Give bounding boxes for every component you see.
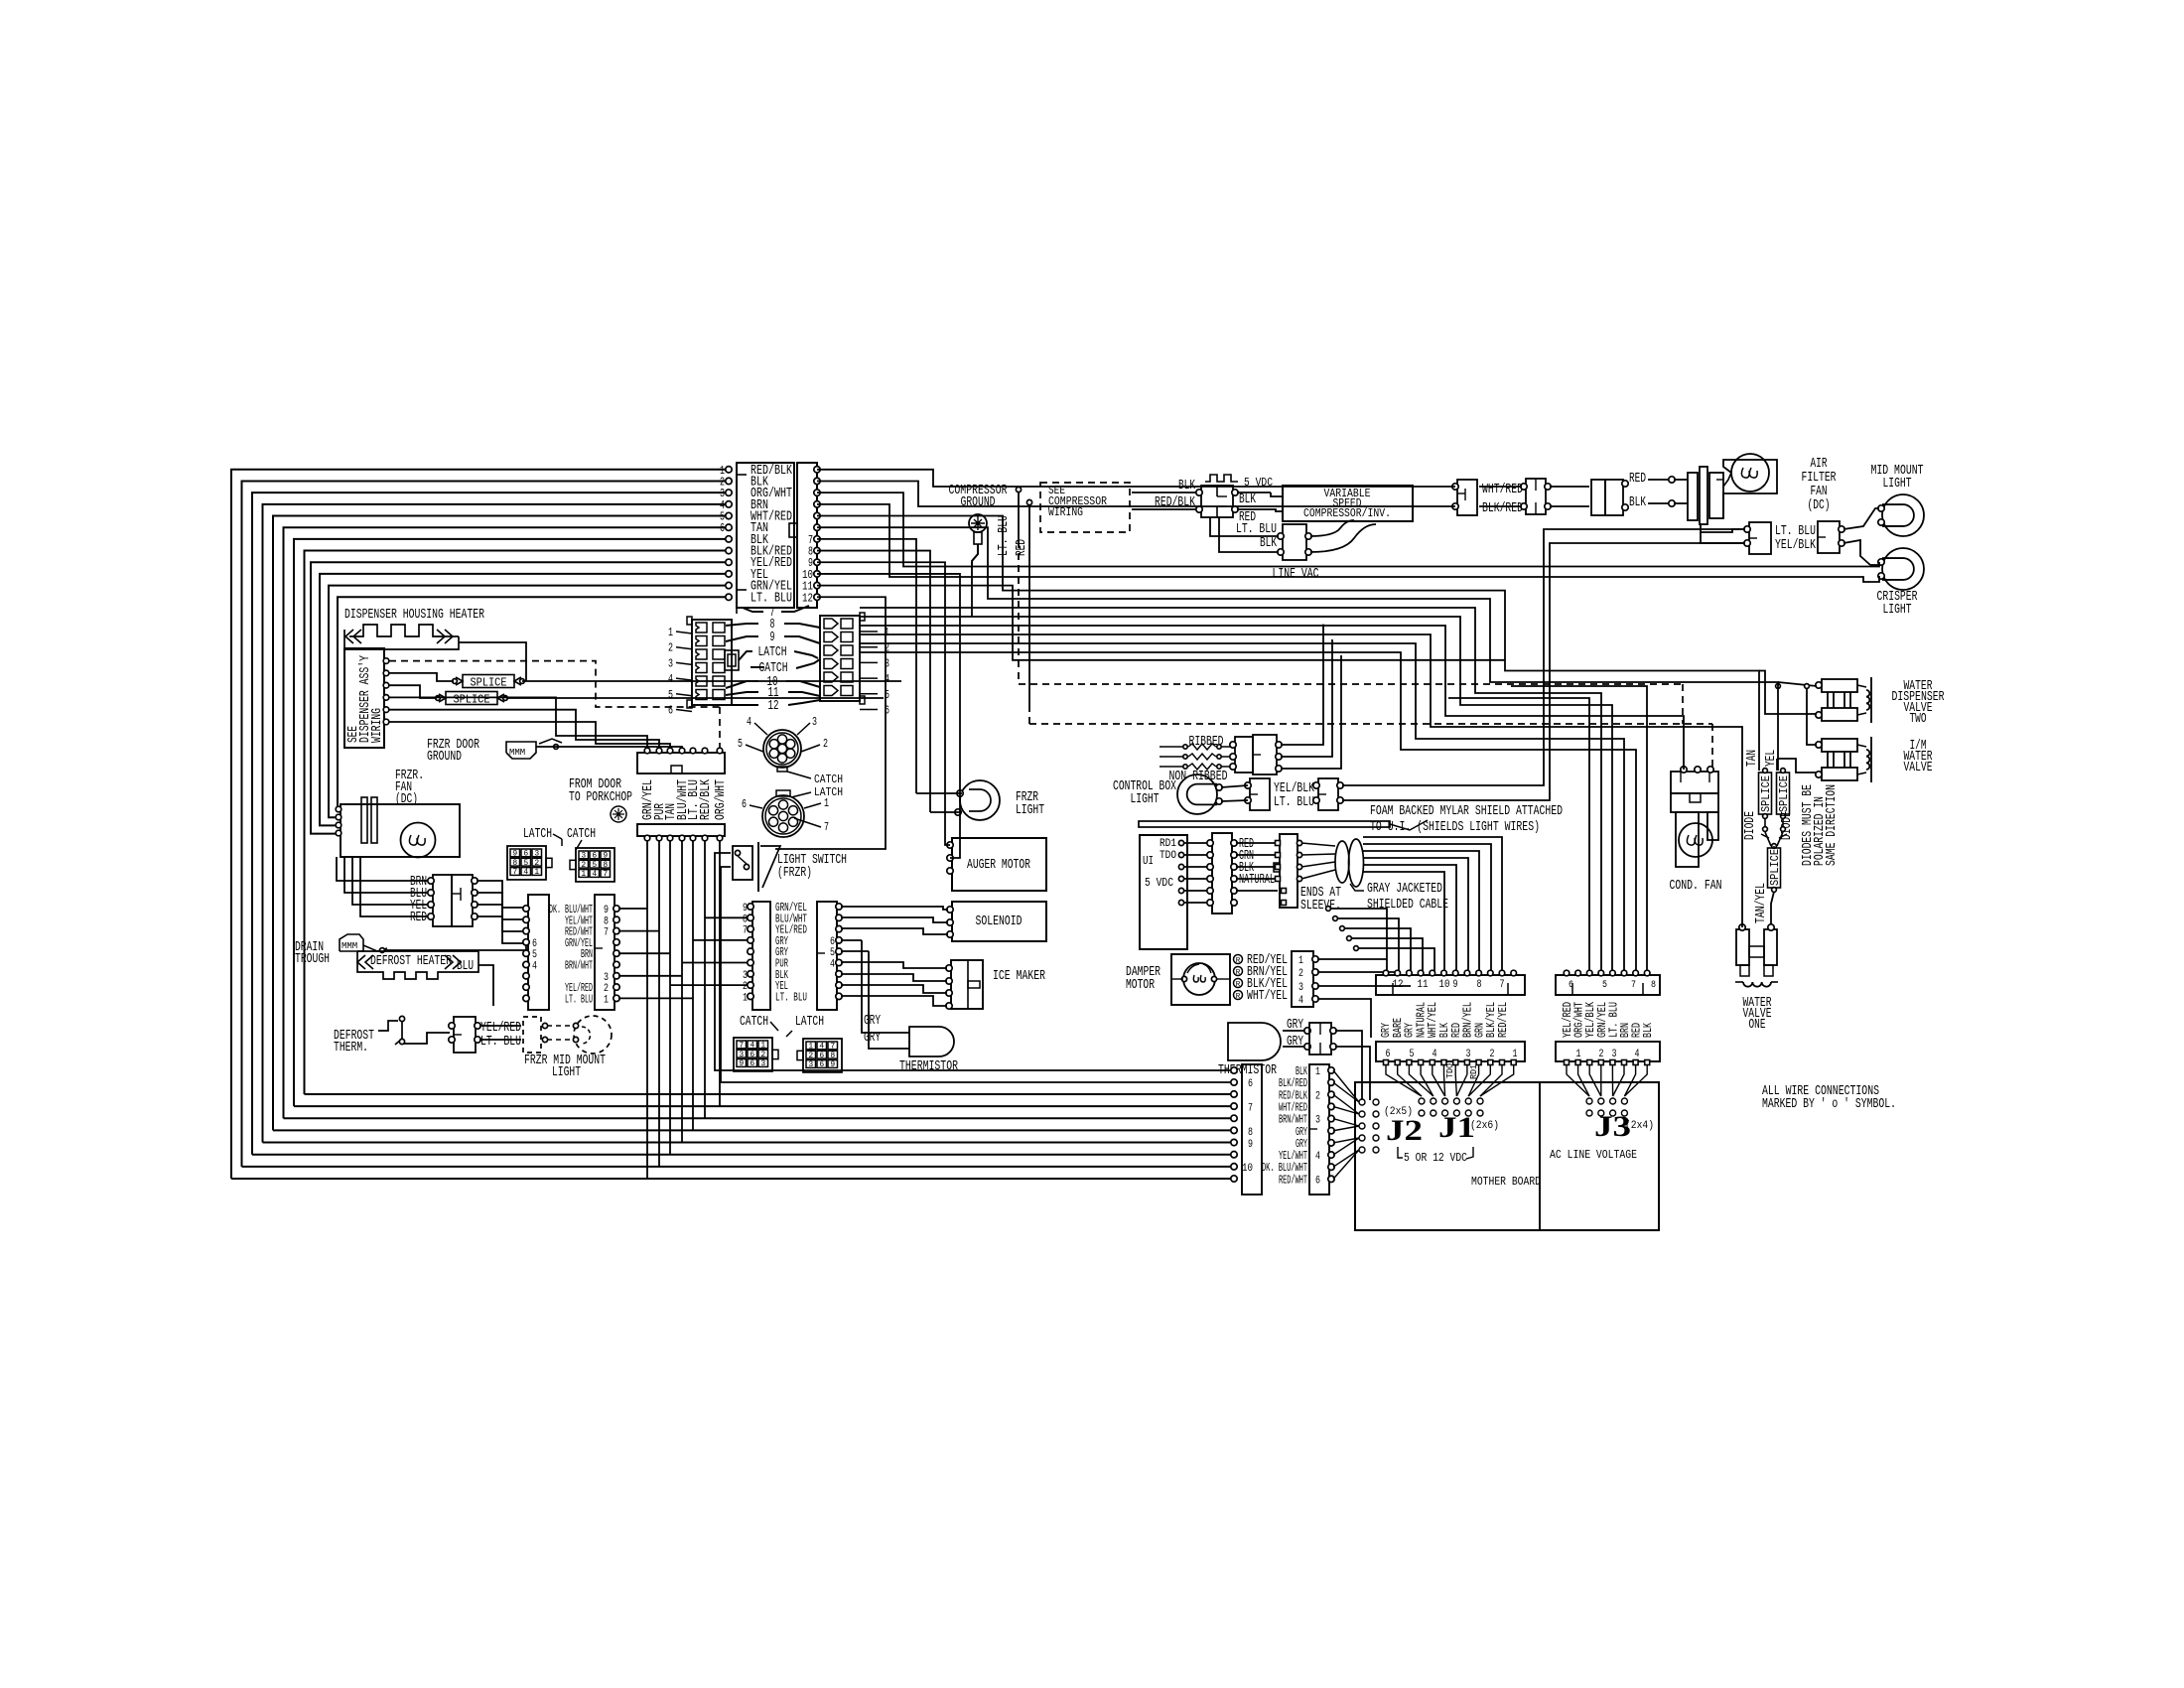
svg-text:9: 9 [830, 1060, 835, 1069]
svg-text:YEL/BLK: YEL/BLK [1274, 781, 1315, 796]
svg-text:4: 4 [1433, 1049, 1437, 1060]
svg-text:2: 2 [1490, 1049, 1495, 1060]
svg-text:BLU: BLU [457, 959, 474, 974]
svg-text:4: 4 [668, 672, 673, 686]
svg-text:DK. BLU/WHT: DK. BLU/WHT [1262, 1162, 1307, 1175]
svg-text:6: 6 [523, 850, 528, 859]
svg-text:VALVE: VALVE [1904, 761, 1933, 775]
svg-text:6: 6 [1315, 1175, 1320, 1187]
svg-text:5: 5 [523, 859, 528, 868]
svg-text:NATURAL: NATURAL [1239, 873, 1275, 888]
svg-text:BLK/RED: BLK/RED [1482, 501, 1523, 516]
svg-text:SPLICE: SPLICE [454, 694, 490, 707]
svg-text:LT. BLU: LT. BLU [1274, 795, 1314, 810]
svg-text:6: 6 [819, 1052, 824, 1060]
svg-text:(2x5): (2x5) [1384, 1106, 1413, 1118]
svg-text:12: 12 [768, 699, 779, 714]
svg-text:TROUGH: TROUGH [295, 952, 330, 967]
svg-text:GRY: GRY [864, 1014, 881, 1029]
svg-text:7: 7 [603, 870, 608, 879]
svg-text:4: 4 [1315, 1151, 1320, 1163]
svg-text:LATCH: LATCH [758, 645, 787, 660]
svg-text:TWO: TWO [1910, 712, 1927, 727]
svg-text:CATCH: CATCH [759, 661, 788, 676]
svg-text:6: 6 [592, 852, 597, 861]
svg-text:3: 3 [1612, 1049, 1617, 1060]
svg-text:1: 1 [743, 992, 748, 1004]
svg-text:SPLICE: SPLICE [1760, 775, 1773, 812]
svg-text:SPLICE: SPLICE [1769, 849, 1782, 886]
svg-text:CATCH: CATCH [740, 1015, 768, 1030]
svg-text:7: 7 [1500, 979, 1505, 991]
svg-text:ICE MAKER: ICE MAKER [993, 969, 1045, 984]
svg-text:5: 5 [830, 947, 835, 959]
svg-text:MOTOR: MOTOR [1126, 978, 1155, 993]
svg-text:YEL/RED: YEL/RED [480, 1021, 521, 1036]
svg-text:RD1: RD1 [1469, 1064, 1479, 1079]
svg-text:4: 4 [819, 1043, 824, 1052]
svg-text:9: 9 [770, 631, 775, 645]
svg-text:FAN: FAN [1811, 485, 1828, 499]
svg-text:3: 3 [812, 715, 817, 729]
svg-text:TAN/YEL: TAN/YEL [1754, 883, 1769, 923]
svg-text:4: 4 [1635, 1049, 1640, 1060]
svg-text:5: 5 [592, 861, 597, 870]
svg-text:9: 9 [1453, 979, 1458, 991]
svg-text:10: 10 [1242, 1163, 1253, 1175]
svg-text:TO U.I. (SHIELDS LIGHT WIRES): TO U.I. (SHIELDS LIGHT WIRES) [1370, 820, 1540, 835]
svg-text:6: 6 [750, 1051, 754, 1059]
svg-text:2: 2 [1315, 1090, 1320, 1102]
svg-text:SPLICE: SPLICE [471, 677, 507, 690]
svg-text:1: 1 [760, 1042, 765, 1051]
svg-text:BLK/RED: BLK/RED [1279, 1077, 1307, 1090]
svg-text:1: 1 [1315, 1066, 1320, 1078]
svg-text:MMM: MMM [341, 941, 357, 951]
svg-text:5 OR 12 VDC: 5 OR 12 VDC [1404, 1151, 1467, 1165]
svg-text:BRN/WHT: BRN/WHT [1279, 1114, 1307, 1127]
svg-text:2: 2 [534, 859, 539, 868]
svg-text:BLK: BLK [1629, 495, 1647, 510]
svg-text:RED/YEL: RED/YEL [1497, 1002, 1510, 1038]
svg-text:GRY: GRY [1296, 1138, 1307, 1151]
svg-text:3: 3 [743, 970, 748, 982]
svg-text:7: 7 [830, 1043, 835, 1052]
svg-text:AUGER MOTOR: AUGER MOTOR [967, 858, 1030, 873]
svg-text:3: 3 [1466, 1049, 1471, 1060]
svg-text:RED/BLK: RED/BLK [1155, 495, 1196, 510]
svg-text:1: 1 [581, 870, 586, 879]
svg-text:1: 1 [668, 626, 673, 639]
svg-text:4: 4 [747, 715, 751, 729]
svg-text:COMPRESSOR/INV.: COMPRESSOR/INV. [1303, 506, 1391, 520]
svg-text:FOAM BACKED MYLAR SHIELD ATTAC: FOAM BACKED MYLAR SHIELD ATTACHED [1370, 804, 1563, 819]
svg-text:SHIELDED CABLE: SHIELDED CABLE [1367, 898, 1448, 913]
svg-text:MOTHER BOARD: MOTHER BOARD [1471, 1175, 1541, 1189]
svg-text:9: 9 [603, 852, 608, 861]
svg-text:6: 6 [742, 797, 747, 811]
svg-text:J2: J2 [1386, 1114, 1423, 1147]
svg-text:LIGHT: LIGHT [1883, 477, 1912, 492]
svg-text:LIGHT: LIGHT [1131, 792, 1160, 807]
svg-text:3: 3 [1298, 982, 1303, 994]
svg-text:RED/WHT: RED/WHT [1279, 1174, 1307, 1187]
svg-text:LT. BLU: LT. BLU [1775, 524, 1816, 539]
svg-text:4: 4 [1298, 995, 1303, 1007]
svg-text:RED/BLK: RED/BLK [1279, 1089, 1307, 1102]
svg-text:3: 3 [604, 972, 609, 984]
svg-text:8: 8 [1248, 1127, 1253, 1139]
svg-text:8: 8 [603, 861, 608, 870]
svg-text:SPLICE: SPLICE [1778, 775, 1791, 812]
svg-text:9: 9 [739, 1059, 744, 1068]
svg-text:3: 3 [1315, 1115, 1320, 1127]
svg-text:4: 4 [750, 1042, 754, 1051]
svg-text:R: R [1236, 981, 1241, 989]
svg-text:7: 7 [1631, 980, 1636, 991]
svg-text:LIGHT: LIGHT [552, 1065, 581, 1080]
svg-text:CATCH: CATCH [814, 773, 843, 786]
svg-text:(DC): (DC) [1808, 498, 1831, 513]
svg-text:4: 4 [532, 961, 537, 973]
svg-text:(2x6): (2x6) [1470, 1120, 1499, 1132]
svg-text:BLK: BLK [1260, 536, 1278, 551]
svg-text:GRY: GRY [1296, 1126, 1307, 1139]
svg-text:DIODE: DIODE [1743, 811, 1758, 840]
svg-text:2: 2 [1298, 968, 1303, 980]
svg-text:6: 6 [668, 704, 673, 718]
svg-text:NON-RIBBED: NON-RIBBED [1169, 770, 1228, 784]
svg-text:YEL/BLK: YEL/BLK [1775, 538, 1817, 553]
svg-text:7: 7 [512, 868, 517, 877]
svg-text:6: 6 [1386, 1049, 1391, 1060]
svg-text:WIRING: WIRING [370, 708, 385, 743]
svg-text:WHT/RED: WHT/RED [1482, 483, 1523, 497]
svg-text:FILTER: FILTER [1802, 471, 1837, 486]
svg-text:2: 2 [1599, 1049, 1604, 1060]
svg-text:COND. FAN: COND. FAN [1670, 879, 1722, 894]
svg-text:R: R [1236, 969, 1241, 977]
svg-text:9: 9 [1248, 1139, 1253, 1151]
svg-text:GROUND: GROUND [427, 750, 462, 765]
svg-text:3: 3 [808, 1060, 813, 1069]
svg-text:SAME DIRECTION: SAME DIRECTION [1825, 784, 1840, 866]
svg-text:8: 8 [1651, 980, 1656, 991]
svg-text:RED: RED [410, 911, 427, 925]
svg-text:LATCH: LATCH [523, 827, 552, 842]
svg-text:WIRING: WIRING [1048, 505, 1083, 519]
svg-text:(FRZR): (FRZR) [777, 866, 812, 881]
svg-text:TO PORKCHOP: TO PORKCHOP [569, 790, 632, 805]
svg-text:2: 2 [760, 1051, 765, 1059]
svg-text:RD1: RD1 [1160, 838, 1176, 850]
svg-text:6: 6 [750, 1059, 754, 1068]
svg-text:9: 9 [512, 850, 517, 859]
svg-text:2: 2 [808, 1052, 813, 1060]
svg-text:3: 3 [760, 1059, 765, 1068]
svg-text:LT. BLU: LT. BLU [775, 991, 807, 1004]
svg-text:8: 8 [604, 915, 609, 927]
svg-text:9: 9 [743, 903, 748, 914]
svg-text:3: 3 [668, 656, 673, 670]
svg-text:GRAY JACKETED: GRAY JACKETED [1367, 882, 1442, 897]
svg-text:8: 8 [743, 914, 748, 925]
svg-text:3: 3 [534, 850, 539, 859]
svg-text:UI: UI [1143, 854, 1154, 868]
svg-text:4: 4 [592, 870, 597, 879]
svg-text:(2x4): (2x4) [1625, 1120, 1654, 1132]
svg-text:2: 2 [823, 737, 828, 751]
svg-text:5: 5 [738, 737, 743, 751]
svg-text:DEFROST HEATER: DEFROST HEATER [370, 954, 452, 969]
svg-text:9: 9 [604, 905, 609, 916]
svg-text:8: 8 [830, 1052, 835, 1060]
svg-text:LIGHT: LIGHT [1016, 803, 1044, 818]
svg-text:5: 5 [1602, 980, 1607, 991]
svg-text:1: 1 [1513, 1049, 1518, 1060]
svg-text:11: 11 [1418, 979, 1429, 991]
svg-text:2: 2 [668, 641, 673, 655]
svg-text:ORG/WHT: ORG/WHT [714, 779, 729, 820]
svg-text:6: 6 [720, 521, 725, 535]
svg-text:7: 7 [1248, 1102, 1253, 1114]
svg-text:AC LINE VOLTAGE: AC LINE VOLTAGE [1550, 1148, 1637, 1162]
svg-text:LATCH: LATCH [795, 1015, 824, 1030]
svg-text:THERMISTOR: THERMISTOR [899, 1059, 958, 1074]
svg-text:BRN/WHT: BRN/WHT [565, 960, 593, 973]
svg-text:RED: RED [1015, 539, 1029, 556]
svg-text:4: 4 [523, 868, 528, 877]
svg-text:4: 4 [830, 959, 835, 971]
svg-text:7: 7 [743, 925, 748, 937]
svg-text:LINE VAC: LINE VAC [1273, 567, 1319, 582]
svg-text:6: 6 [819, 1060, 824, 1069]
svg-text:2: 2 [604, 983, 609, 995]
svg-text:LT. BLU: LT. BLU [751, 591, 792, 606]
svg-text:LATCH: LATCH [814, 785, 843, 799]
svg-text:ONE: ONE [1749, 1018, 1766, 1033]
svg-text:YEL/WHT: YEL/WHT [1279, 1150, 1307, 1163]
svg-text:MARKED BY ' o ' SYMBOL.: MARKED BY ' o ' SYMBOL. [1762, 1097, 1896, 1112]
svg-text:BLK: BLK [1296, 1065, 1307, 1078]
svg-text:WHT/RED: WHT/RED [1279, 1101, 1307, 1114]
svg-text:1: 1 [1298, 955, 1303, 967]
svg-text:BLK: BLK [1239, 492, 1257, 507]
svg-text:TAN: TAN [1745, 750, 1760, 767]
svg-text:5 VDC: 5 VDC [1145, 876, 1173, 890]
svg-text:SOLENOID: SOLENOID [976, 914, 1023, 929]
svg-text:LT. BLU: LT. BLU [997, 515, 1012, 556]
svg-text:8: 8 [1477, 979, 1482, 991]
svg-text:5: 5 [1410, 1049, 1415, 1060]
svg-text:8: 8 [512, 859, 517, 868]
svg-text:R: R [1236, 957, 1241, 965]
svg-text:BLK: BLK [1642, 1023, 1655, 1038]
svg-text:10: 10 [1439, 979, 1450, 991]
svg-text:1: 1 [534, 868, 539, 877]
svg-text:LT. BLU: LT. BLU [1236, 522, 1277, 537]
svg-text:DISPENSER HOUSING HEATER: DISPENSER HOUSING HEATER [344, 608, 484, 623]
svg-text:5: 5 [532, 949, 537, 961]
svg-text:12: 12 [1393, 979, 1404, 991]
svg-text:MMM: MMM [509, 748, 525, 758]
svg-text:SLEEVE.: SLEEVE. [1300, 899, 1341, 914]
svg-text:6: 6 [1248, 1078, 1253, 1090]
svg-text:LT. BLU: LT. BLU [480, 1035, 521, 1050]
svg-text:3: 3 [581, 852, 586, 861]
svg-text:TDO: TDO [1445, 1063, 1455, 1078]
svg-text:1: 1 [604, 994, 609, 1006]
svg-text:6: 6 [532, 938, 537, 950]
svg-text:R: R [1236, 993, 1241, 1001]
svg-text:THERM.: THERM. [334, 1041, 368, 1055]
svg-text:12: 12 [802, 591, 813, 605]
svg-text:TDO: TDO [1160, 850, 1176, 862]
svg-text:2: 2 [743, 981, 748, 993]
svg-text:3: 3 [739, 1051, 744, 1059]
svg-text:1: 1 [808, 1043, 813, 1052]
svg-text:6: 6 [1569, 980, 1573, 991]
svg-text:5: 5 [668, 688, 673, 702]
svg-text:7: 7 [739, 1042, 744, 1051]
svg-text:7: 7 [604, 927, 609, 939]
svg-text:GROUND: GROUND [961, 495, 996, 510]
svg-text:6: 6 [830, 936, 835, 948]
svg-text:LIGHT: LIGHT [1883, 603, 1912, 618]
svg-text:WHT/YEL: WHT/YEL [1247, 989, 1288, 1004]
svg-text:7: 7 [824, 820, 829, 834]
svg-text:1: 1 [1576, 1049, 1581, 1060]
svg-text:RED: RED [1629, 472, 1646, 487]
svg-text:LT. BLU: LT. BLU [565, 993, 593, 1006]
svg-text:RED/BLK: RED/BLK [699, 778, 714, 820]
svg-text:2: 2 [581, 861, 586, 870]
svg-text:AIR: AIR [1811, 457, 1828, 472]
